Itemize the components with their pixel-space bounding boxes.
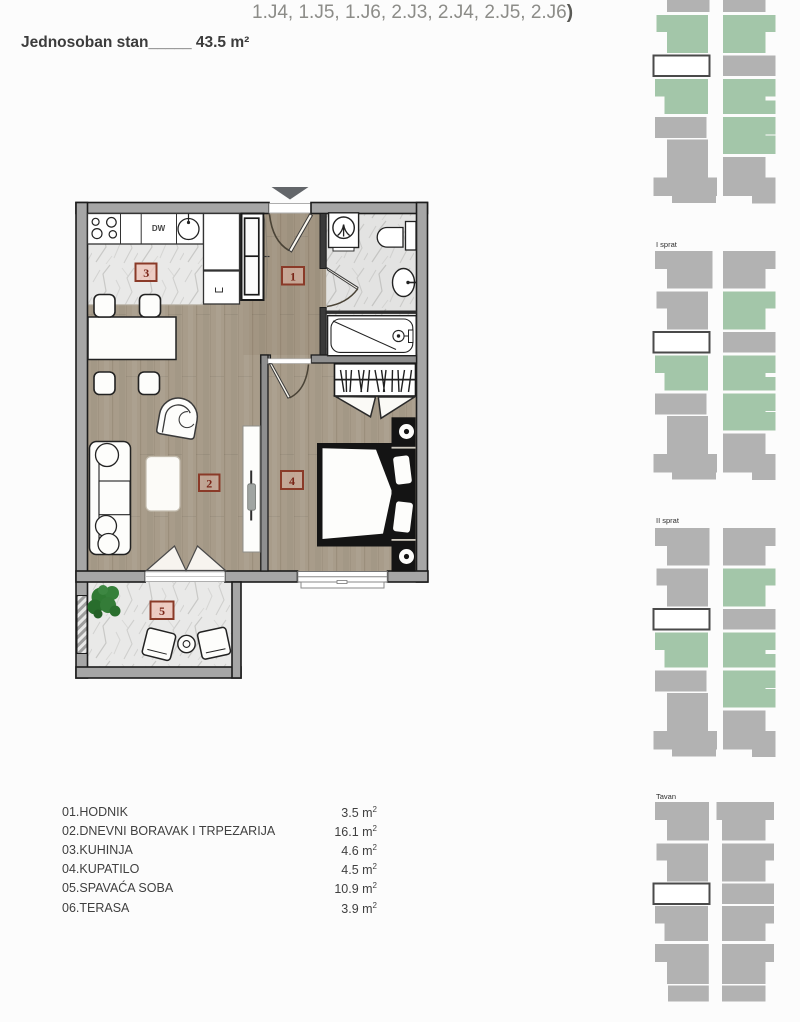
- svg-text:Tavan: Tavan: [656, 792, 676, 801]
- svg-text:5: 5: [159, 604, 165, 618]
- svg-text:II sprat: II sprat: [656, 516, 680, 525]
- svg-text:3: 3: [143, 266, 149, 280]
- svg-text:2: 2: [206, 476, 212, 490]
- svg-text:4: 4: [289, 474, 295, 488]
- svg-text:DW: DW: [152, 224, 166, 233]
- svg-text:1: 1: [290, 269, 296, 283]
- svg-text:I sprat: I sprat: [656, 240, 678, 249]
